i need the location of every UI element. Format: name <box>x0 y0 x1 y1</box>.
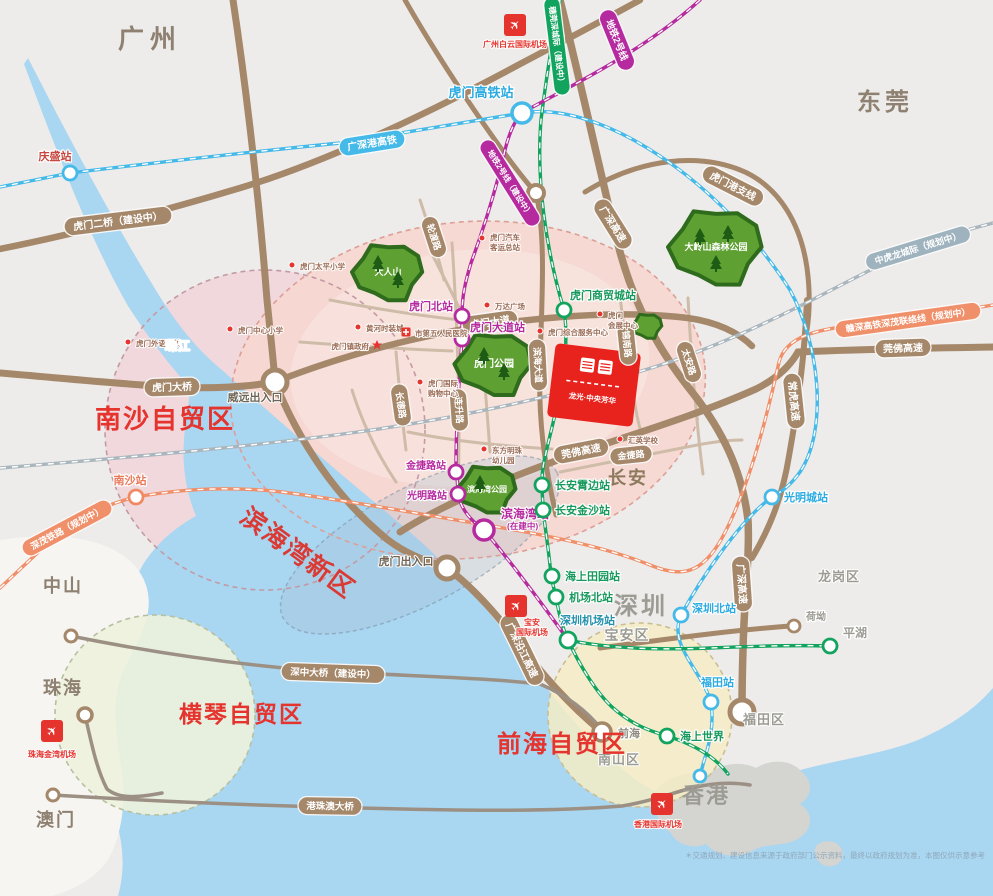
poi-dot-icon <box>537 328 543 334</box>
airport-label: 国际机场 <box>516 627 548 637</box>
station-marker <box>694 770 706 782</box>
poi-label: 虎门国际 <box>428 378 458 388</box>
tree-icon <box>483 361 485 364</box>
poi-dot-icon <box>481 446 487 452</box>
station-marker <box>63 166 77 180</box>
station-marker <box>535 478 549 492</box>
station-label: 庆盛站 <box>38 149 72 163</box>
station-label: 长安霄边站 <box>555 478 610 492</box>
poi-label: 购物中心 <box>428 388 458 398</box>
poi-label: 会展中心 <box>608 320 638 330</box>
poi-dot-icon <box>417 379 423 385</box>
city-label: 福田区 <box>742 712 785 727</box>
station-marker <box>823 639 837 653</box>
airport-label: 宝安 <box>524 617 540 627</box>
park-label: 滨海湾公园 <box>467 484 507 494</box>
city-label: 珠江 <box>165 338 191 353</box>
airport-icon: ✈ <box>505 595 527 617</box>
poi-label: 黄河时装城 <box>366 323 404 333</box>
station-marker <box>536 503 550 517</box>
road-badge: 莞佛高速 <box>875 338 932 358</box>
station-marker <box>474 520 494 540</box>
poi-label: 虎门汽车 <box>490 232 520 242</box>
poi-label: 汇英学校 <box>628 435 658 445</box>
city-label: 深圳 <box>614 593 668 620</box>
station-marker <box>704 695 718 709</box>
poi-dot-icon <box>617 436 623 442</box>
city-label: 香港 <box>682 783 730 808</box>
station-label: 光明城站 <box>783 490 828 504</box>
map-stage: 大人山大岭山森林公园虎门公园滨海湾公园龙光·中央芳华广深港高铁穗莞深城际（建设中… <box>0 0 993 896</box>
poi-cross-icon <box>402 328 411 337</box>
station-label: 深圳北站 <box>692 601 736 615</box>
city-label: 龙岗区 <box>818 569 860 584</box>
junction-marker <box>528 185 544 201</box>
airport-label: 广州白云国际机场 <box>483 39 547 49</box>
station-marker <box>549 590 563 604</box>
zone-label: 横琴自贸区 <box>179 701 304 727</box>
tree-icon <box>503 377 505 380</box>
badge-label: 连升路 <box>453 396 466 425</box>
station-sublabel: (在建中) <box>507 521 538 531</box>
airport-icon: ✈ <box>651 793 673 815</box>
junction-marker <box>263 370 287 394</box>
tree-icon <box>727 239 729 242</box>
station-label: 荷坳 <box>805 610 826 623</box>
station-marker <box>674 608 688 622</box>
airport-label: 珠海金湾机场 <box>28 749 76 759</box>
station-marker <box>451 487 465 501</box>
map-canvas: 大人山大岭山森林公园虎门公园滨海湾公园龙光·中央芳华广深港高铁穗莞深城际（建设中… <box>0 0 993 896</box>
junction-marker <box>78 708 92 722</box>
zone-label: 前海自贸区 <box>497 730 627 758</box>
junction-marker <box>436 557 458 579</box>
badge-label: 滨海大道 <box>532 347 545 384</box>
road-badge: 港珠澳大桥 <box>298 796 362 815</box>
station-label: 虎门商贸城站 <box>570 288 636 302</box>
park-label: 大岭山森林公园 <box>684 241 747 252</box>
station-marker <box>455 309 469 323</box>
tree-icon <box>377 269 379 272</box>
zone-label: 南沙自贸区 <box>95 404 235 434</box>
station-marker <box>765 490 779 504</box>
station-label: 南沙站 <box>114 473 147 487</box>
poi-label: 幼儿园 <box>492 455 515 465</box>
city-label: 珠海 <box>43 677 83 698</box>
poi-label: 虎门综合服务中心 <box>548 327 608 337</box>
station-label: 海上田园站 <box>565 569 620 583</box>
road-badge: 虎门大桥 <box>144 377 201 397</box>
poi-dot-icon <box>355 324 361 330</box>
poi-dot-icon <box>125 339 131 345</box>
airport-icon: ✈ <box>41 720 63 742</box>
station-label: 福田站 <box>700 675 734 689</box>
station-label: 金捷路站 <box>405 459 446 472</box>
poi-label: 虎门中心小学 <box>238 325 283 335</box>
tree-icon <box>699 242 701 245</box>
city-label: 澳门 <box>36 809 76 830</box>
road-badge: 滨海大道 <box>528 339 548 392</box>
poi-dot-icon <box>484 302 490 308</box>
poi-label: 虎门 <box>608 310 623 320</box>
poi-dot-icon <box>227 326 233 332</box>
station-label: 深圳机场站 <box>560 613 615 627</box>
poi-label: 客运总站 <box>489 242 520 252</box>
poi-label: 虎门太平小学 <box>300 261 345 271</box>
road-badge: 深中大桥（建设中） <box>281 662 386 684</box>
station-label: 海上世界 <box>680 729 724 743</box>
station-label: 长安金沙站 <box>555 503 610 517</box>
poi-label: 虎门镇政府 <box>332 341 370 351</box>
station-marker <box>560 632 576 648</box>
tree-icon <box>479 489 481 492</box>
tree-icon <box>715 269 717 272</box>
city-label: 东莞 <box>857 88 913 116</box>
poi-label: 东方明珠 <box>492 445 522 455</box>
city-label: 广州 <box>118 24 182 54</box>
station-marker <box>545 569 559 583</box>
badge-label: 港珠澳大桥 <box>306 800 354 813</box>
station-marker <box>512 103 532 123</box>
poi-label: 万达广场 <box>494 301 525 311</box>
tree-icon <box>397 285 399 288</box>
station-marker <box>557 303 571 317</box>
poi-dot-icon <box>597 311 603 317</box>
station-marker <box>449 465 463 479</box>
junction-marker <box>47 789 59 801</box>
station-label: 平湖 <box>843 625 867 640</box>
poi-dot-icon <box>289 262 295 268</box>
station-label: 虎门高铁站 <box>448 85 513 100</box>
disclaimer-text: ＊交通规划、建设信息来源于政府部门公示资料，最终以政府规划为准，本图仅供示意参考 <box>685 850 985 860</box>
city-label: 宝安区 <box>605 627 650 643</box>
junction-marker <box>65 630 77 642</box>
city-label: 长安 <box>608 467 648 488</box>
station-label: 光明路站 <box>406 489 447 502</box>
station-label: 虎门大道站 <box>470 320 525 334</box>
poi-dot-icon <box>479 235 485 241</box>
station-label: 机场北站 <box>569 590 613 604</box>
station-marker <box>660 729 674 743</box>
city-label: 虎门出入口 <box>379 554 434 568</box>
station-marker <box>129 490 143 504</box>
station-marker <box>788 620 800 632</box>
airport-label: 香港国际机场 <box>633 819 682 829</box>
poi-label: 市第五人民医院 <box>415 328 468 338</box>
airport-icon: ✈ <box>504 14 526 36</box>
station-label: 虎门北站 <box>409 299 453 313</box>
city-label: 中山 <box>43 575 83 596</box>
city-label: 威远出入口 <box>228 390 283 404</box>
